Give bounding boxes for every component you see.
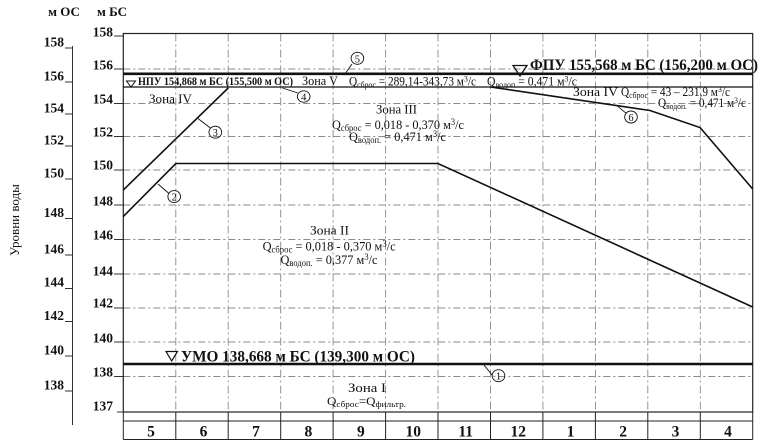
svg-text:138: 138 <box>93 365 114 380</box>
svg-text:1: 1 <box>496 372 501 383</box>
svg-text:6: 6 <box>628 113 633 124</box>
svg-text:140: 140 <box>44 343 65 358</box>
svg-text:м БС: м БС <box>97 4 127 19</box>
svg-text:154: 154 <box>44 101 65 116</box>
svg-text:3: 3 <box>213 128 218 139</box>
svg-text:11: 11 <box>458 424 473 441</box>
svg-text:137: 137 <box>93 399 114 414</box>
svg-text:154: 154 <box>93 92 114 107</box>
svg-text:5: 5 <box>147 424 155 441</box>
svg-text:УМО 138,668 м БС (139,300 м ОС: УМО 138,668 м БС (139,300 м ОС) <box>181 349 415 366</box>
svg-text:4: 4 <box>301 93 307 104</box>
svg-text:10: 10 <box>406 424 422 441</box>
svg-text:148: 148 <box>93 194 114 209</box>
svg-text:158: 158 <box>44 35 65 50</box>
svg-text:158: 158 <box>93 25 114 40</box>
svg-text:Уровни воды: Уровни воды <box>7 184 22 256</box>
svg-text:НПУ 154,868 м БС (155,500 м ОС: НПУ 154,868 м БС (155,500 м ОС) <box>138 74 293 88</box>
svg-text:3: 3 <box>672 424 680 441</box>
svg-text:140: 140 <box>93 331 114 346</box>
svg-text:152: 152 <box>44 133 65 148</box>
svg-text:150: 150 <box>93 158 114 173</box>
svg-text:156: 156 <box>44 69 65 84</box>
svg-text:Зона V: Зона V <box>302 73 339 88</box>
svg-text:12: 12 <box>510 424 526 441</box>
svg-text:7: 7 <box>252 424 260 441</box>
svg-text:152: 152 <box>93 125 114 140</box>
svg-text:146: 146 <box>44 242 65 257</box>
svg-text:150: 150 <box>44 166 65 181</box>
svg-text:8: 8 <box>305 424 313 441</box>
svg-text:Зона IV: Зона IV <box>149 91 193 106</box>
svg-text:Зона I: Зона I <box>348 380 386 395</box>
svg-text:м ОС: м ОС <box>48 4 80 19</box>
svg-text:2: 2 <box>172 193 177 204</box>
svg-text:146: 146 <box>93 228 114 243</box>
svg-text:ФПУ 155,568 м БС (156,200 м ОС: ФПУ 155,568 м БС (156,200 м ОС) <box>530 57 758 74</box>
svg-text:156: 156 <box>93 58 114 73</box>
svg-text:1: 1 <box>567 424 575 441</box>
svg-text:Зона IV: Зона IV <box>573 85 618 99</box>
svg-text:148: 148 <box>44 205 65 220</box>
svg-text:142: 142 <box>44 308 65 323</box>
svg-text:Зона II: Зона II <box>310 223 349 238</box>
svg-text:144: 144 <box>93 264 114 279</box>
svg-text:142: 142 <box>93 296 114 311</box>
svg-text:Зона III: Зона III <box>376 102 417 117</box>
svg-text:144: 144 <box>44 275 65 290</box>
svg-text:9: 9 <box>357 424 365 441</box>
svg-text:138: 138 <box>44 378 65 393</box>
svg-text:6: 6 <box>200 424 208 441</box>
svg-text:5: 5 <box>355 54 360 65</box>
svg-text:4: 4 <box>724 424 732 441</box>
svg-text:2: 2 <box>619 424 627 441</box>
